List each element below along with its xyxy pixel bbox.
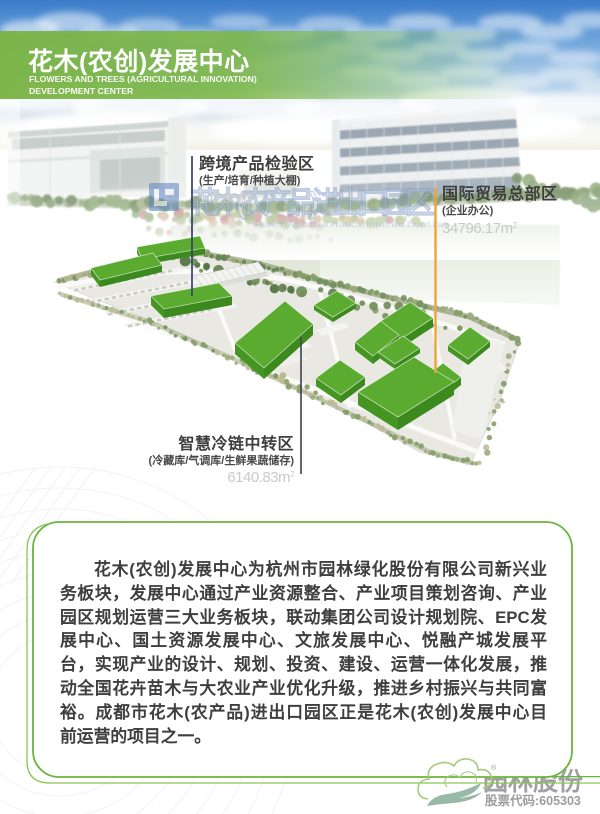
- svg-text:®: ®: [491, 764, 497, 772]
- svg-text:股票代码:605303: 股票代码:605303: [485, 793, 581, 808]
- svg-text:Flowers (Agricultural Products: Flowers (Agricultural Products) Import a…: [255, 220, 450, 229]
